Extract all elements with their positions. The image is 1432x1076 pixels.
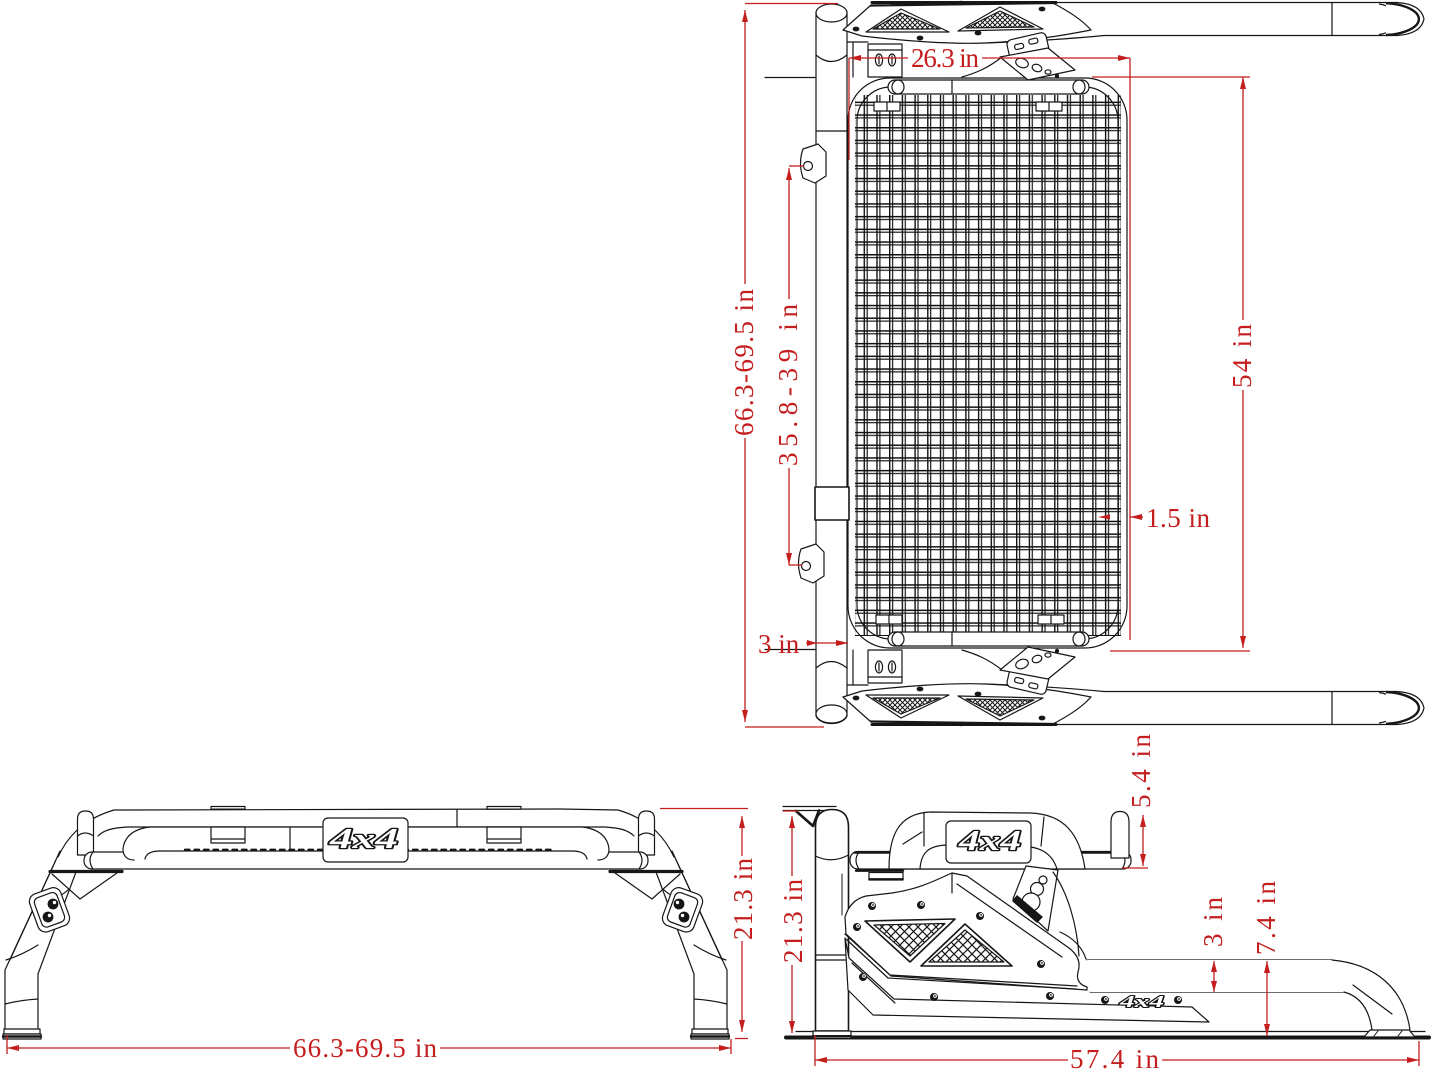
svg-text:3 in: 3 in xyxy=(1198,897,1228,948)
svg-text:26.3 in: 26.3 in xyxy=(911,43,980,73)
svg-text:4x4: 4x4 xyxy=(1118,992,1164,1011)
svg-text:3 in: 3 in xyxy=(758,629,800,659)
svg-text:21.3 in: 21.3 in xyxy=(728,858,758,941)
svg-text:1.5 in: 1.5 in xyxy=(1146,503,1211,533)
svg-text:5.4 in: 5.4 in xyxy=(1126,734,1156,809)
svg-text:57.4 in: 57.4 in xyxy=(1070,1044,1160,1074)
svg-text:21.3 in: 21.3 in xyxy=(778,879,808,964)
svg-text:35.8-39 in: 35.8-39 in xyxy=(773,304,803,467)
svg-text:4x4: 4x4 xyxy=(958,826,1021,857)
svg-text:66.3-69.5 in: 66.3-69.5 in xyxy=(293,1033,438,1063)
svg-text:7.4 in: 7.4 in xyxy=(1251,881,1281,956)
svg-text:66.3-69.5 in: 66.3-69.5 in xyxy=(729,289,759,437)
svg-text:54 in: 54 in xyxy=(1227,324,1257,389)
svg-text:4x4: 4x4 xyxy=(328,824,398,855)
